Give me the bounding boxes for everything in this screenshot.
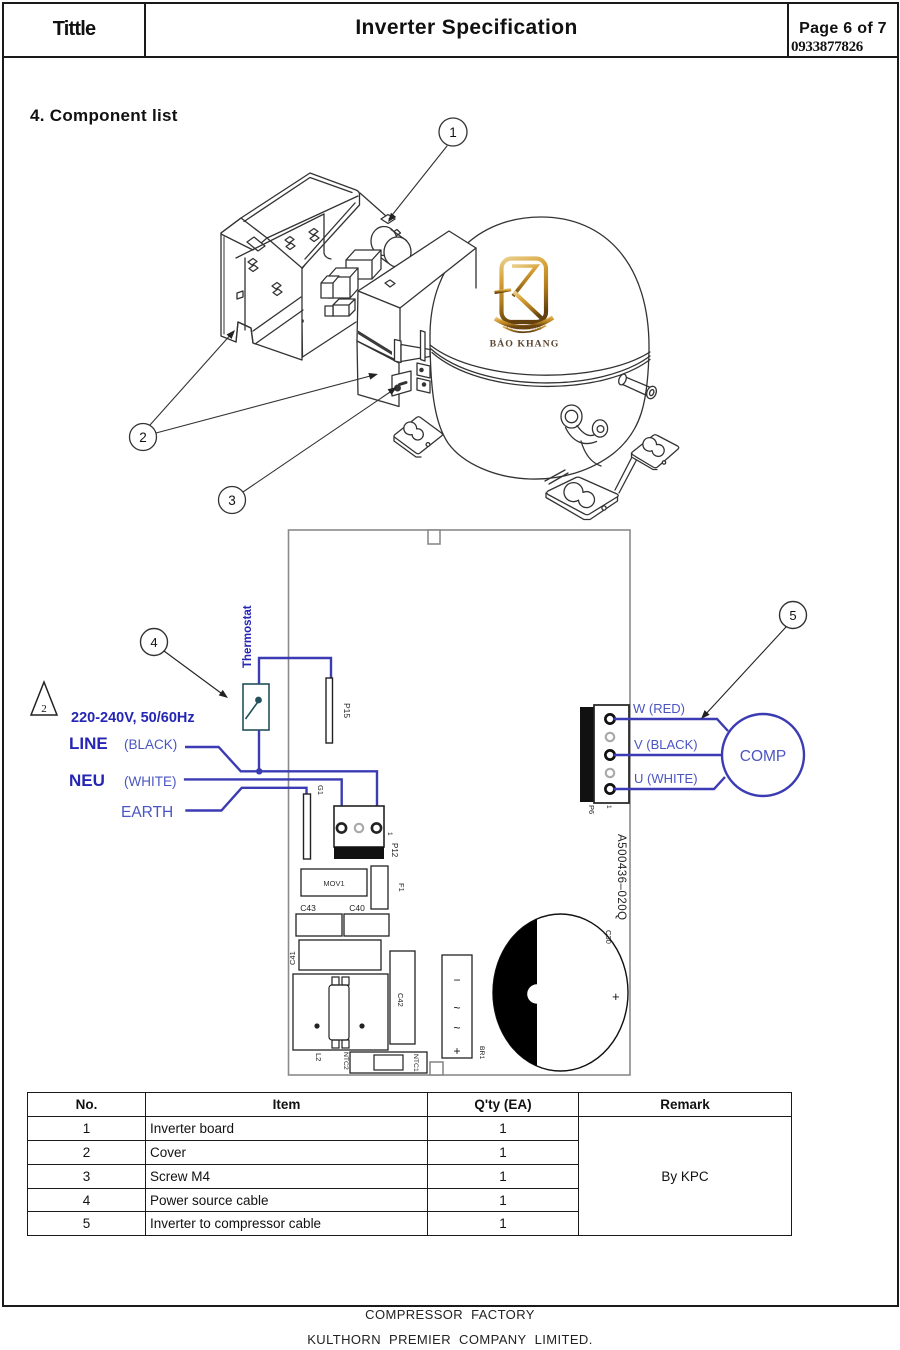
svg-text:C30: C30 (604, 930, 613, 944)
svg-text:1: 1 (386, 832, 393, 836)
svg-text:+: + (612, 989, 620, 1004)
svg-text:5: 5 (789, 608, 796, 623)
svg-text:C40: C40 (349, 903, 365, 913)
svg-text:V (BLACK): V (BLACK) (634, 737, 698, 752)
svg-text:P6: P6 (587, 805, 596, 814)
svg-text:2: 2 (139, 430, 147, 445)
svg-text:EARTH: EARTH (121, 804, 173, 821)
svg-text:P12: P12 (390, 843, 399, 858)
svg-text:Thermostat: Thermostat (242, 605, 254, 668)
svg-text:(BLACK): (BLACK) (124, 737, 177, 752)
svg-text:−: − (453, 973, 460, 987)
svg-text:LINE: LINE (69, 734, 108, 753)
svg-text:NEU: NEU (69, 771, 105, 790)
svg-text:3: 3 (228, 493, 236, 508)
svg-text:G1: G1 (316, 785, 325, 795)
svg-text:4: 4 (150, 635, 157, 650)
svg-text:C43: C43 (300, 903, 316, 913)
svg-text:(WHITE): (WHITE) (124, 774, 176, 789)
svg-text:C41: C41 (288, 951, 297, 965)
svg-text:P15: P15 (342, 703, 352, 718)
svg-text:A500436–020Q: A500436–020Q (615, 834, 627, 921)
svg-text:F1: F1 (397, 883, 406, 892)
svg-text:U (WHITE): U (WHITE) (634, 771, 698, 786)
svg-text:~: ~ (453, 1001, 460, 1015)
svg-text:1: 1 (605, 805, 612, 809)
svg-text:NTC2: NTC2 (342, 1052, 349, 1070)
svg-text:BR1: BR1 (478, 1046, 485, 1059)
svg-text:~: ~ (453, 1021, 460, 1035)
svg-text:1: 1 (449, 125, 457, 140)
svg-text:BẢO KHANG: BẢO KHANG (490, 338, 560, 350)
svg-text:COMPRESSOR: COMPRESSOR (507, 326, 542, 331)
svg-text:COMP: COMP (740, 748, 787, 765)
svg-text:NTC1: NTC1 (412, 1054, 419, 1072)
svg-text:C42: C42 (396, 993, 405, 1007)
svg-text:W (RED): W (RED) (633, 701, 685, 716)
svg-text:+: + (453, 1044, 460, 1058)
svg-text:2: 2 (41, 703, 47, 715)
svg-text:L2: L2 (314, 1053, 323, 1061)
svg-text:MOV1: MOV1 (323, 879, 344, 888)
svg-text:220-240V, 50/60Hz: 220-240V, 50/60Hz (71, 710, 195, 726)
